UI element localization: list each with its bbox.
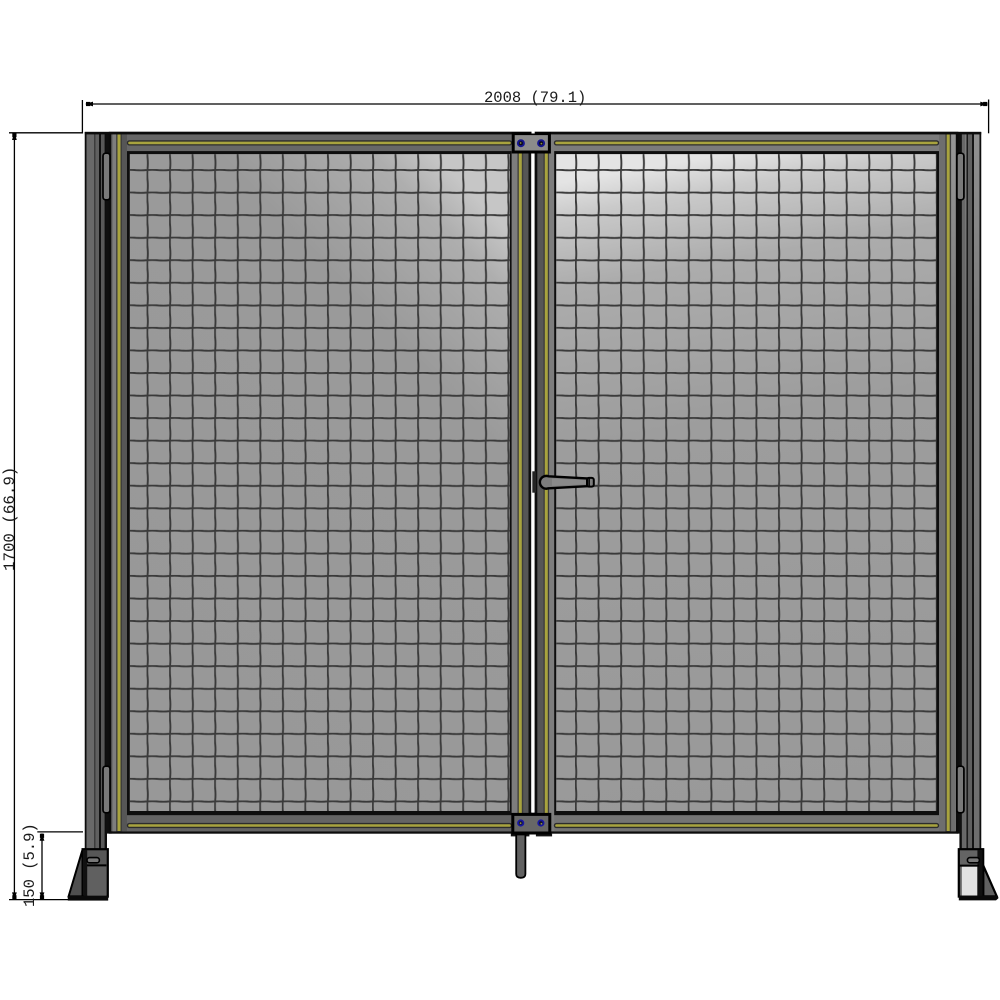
svg-text:1700 (66.9): 1700 (66.9): [1, 467, 19, 571]
svg-text:150 (5.9): 150 (5.9): [21, 823, 39, 907]
svg-text:2008 (79.1): 2008 (79.1): [484, 89, 586, 107]
